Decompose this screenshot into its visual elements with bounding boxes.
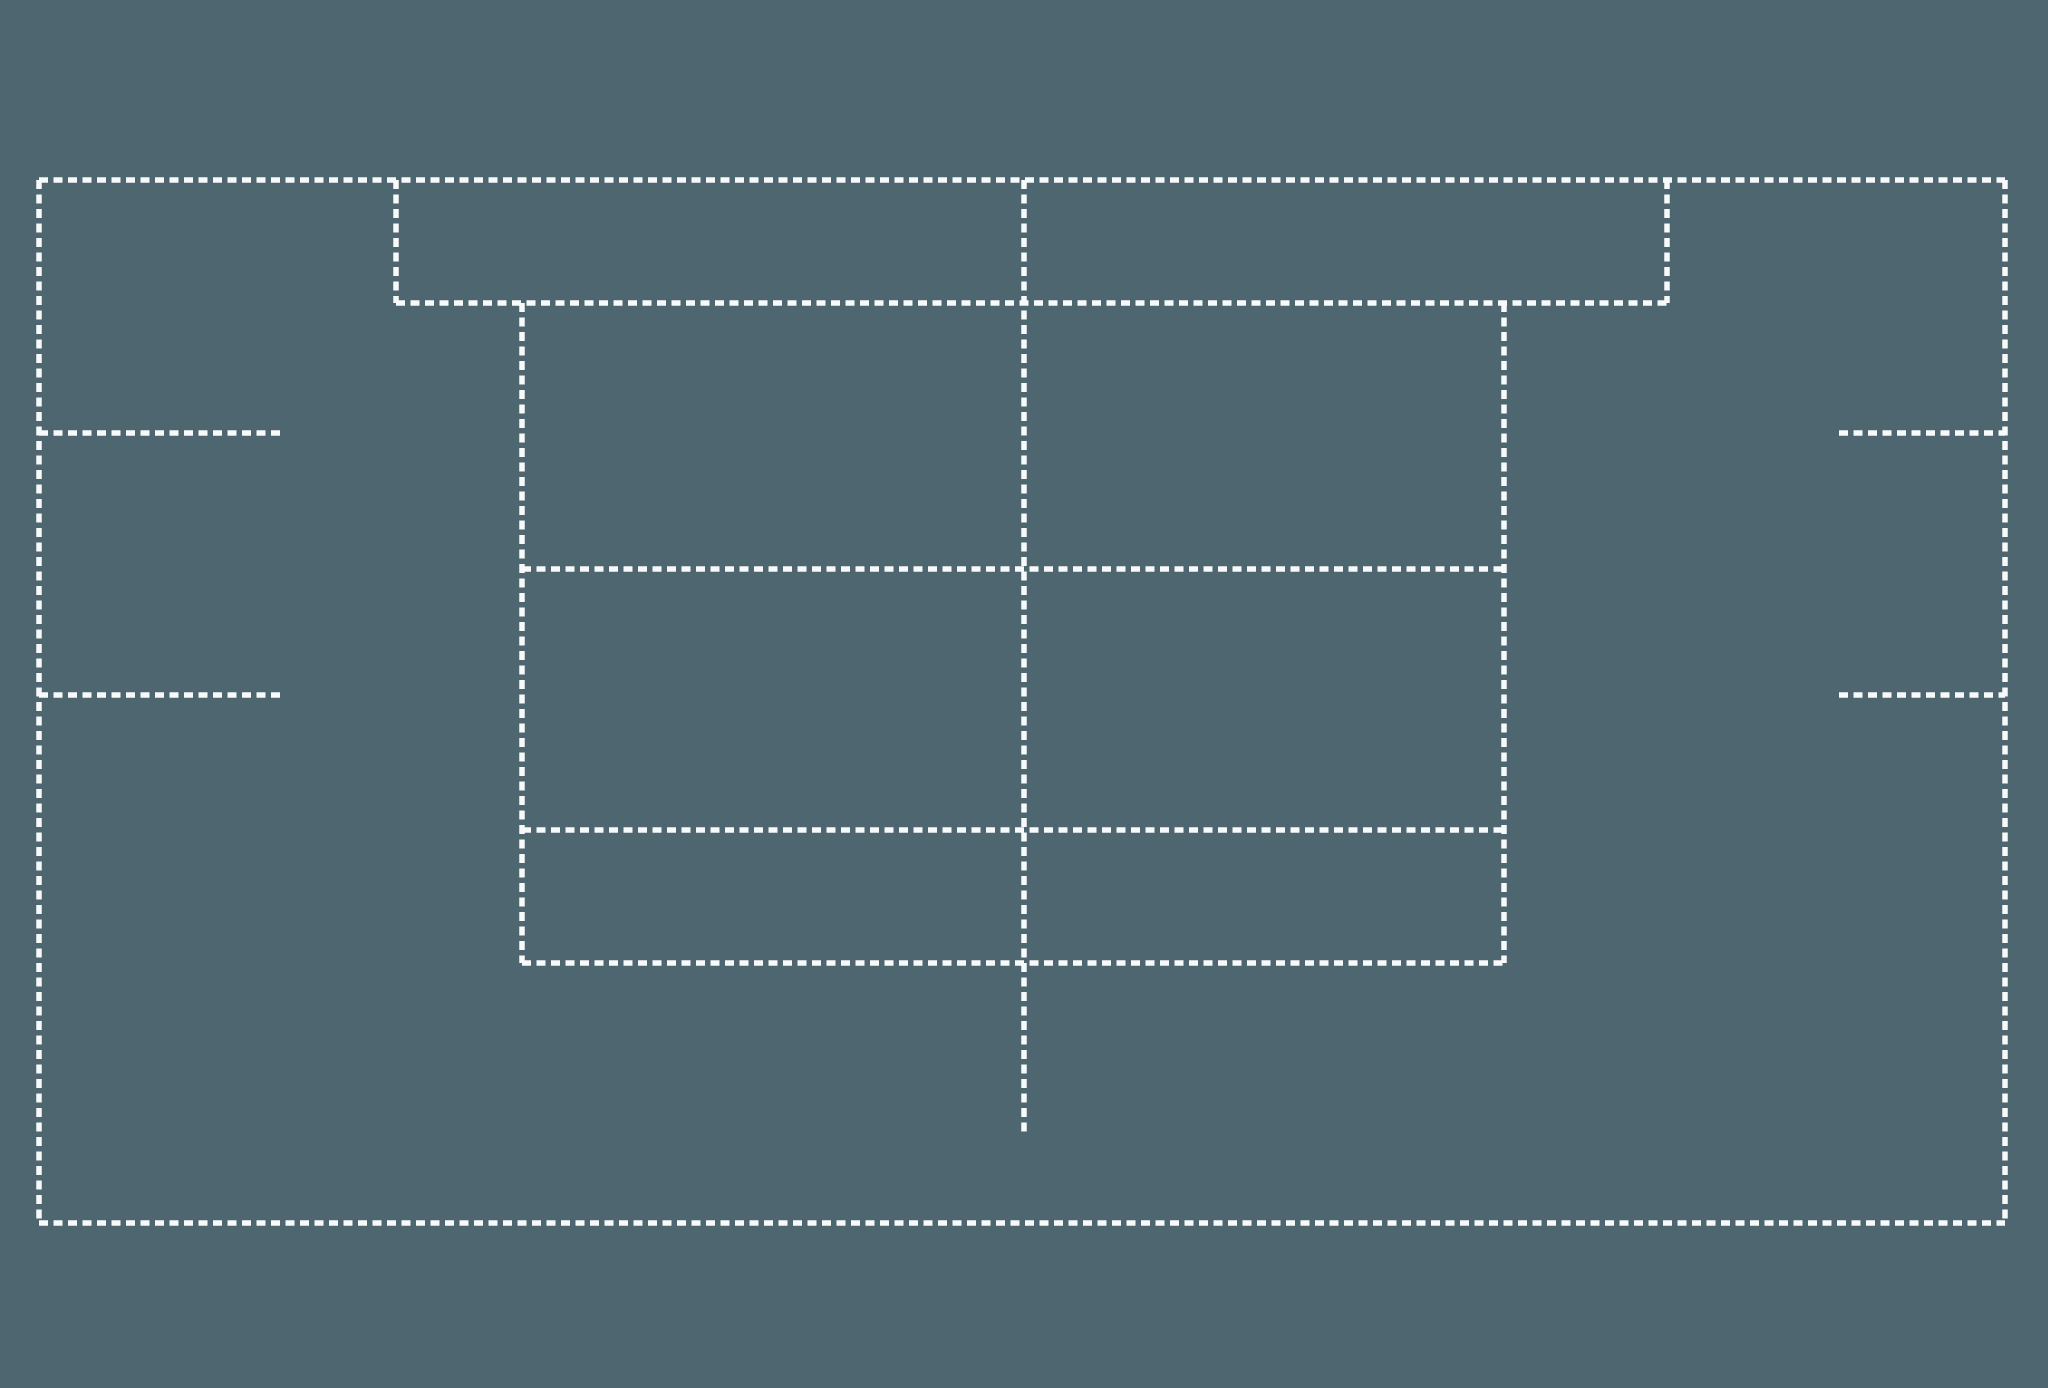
- wireframe-svg: [0, 0, 2048, 1388]
- wireframe-canvas: [0, 0, 2048, 1388]
